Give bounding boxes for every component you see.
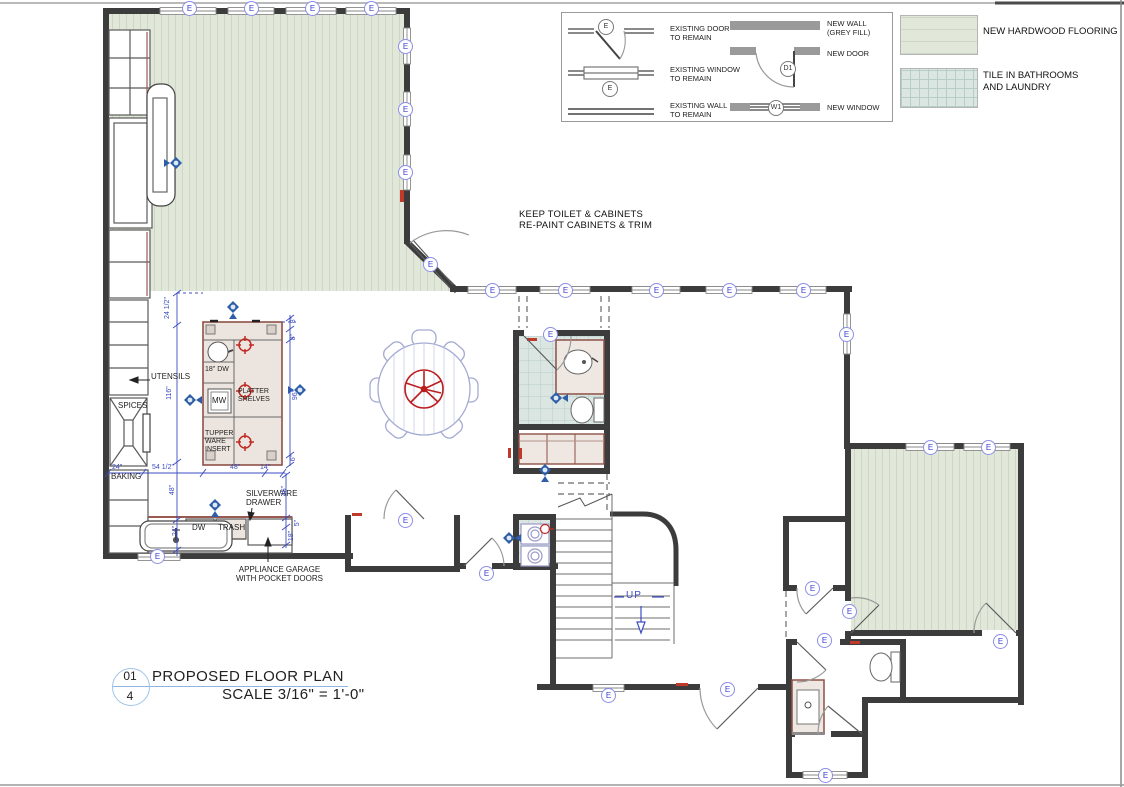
dim-24-h: 24" — [112, 464, 122, 472]
existing-badge: E — [398, 39, 413, 54]
existing-badge: E — [398, 513, 413, 528]
silverware-label: SILVERWARE DRAWER — [246, 489, 297, 507]
legend-new-wall-label: NEW WALL (GREY FILL) — [827, 19, 870, 38]
spices-label: SPICES — [118, 401, 147, 410]
tile-swatch — [900, 68, 978, 108]
door-mudroom — [464, 538, 504, 566]
existing-badge: E — [818, 768, 833, 783]
powder-toilet — [571, 397, 593, 423]
dim-24-v: 24" — [172, 509, 180, 553]
dim-14: 14" — [260, 464, 270, 472]
tupperware-label: TUPPER WARE INSERT — [205, 430, 233, 454]
existing-badge: E — [150, 549, 165, 564]
existing-badge: E — [923, 440, 938, 455]
existing-badge: E — [649, 283, 664, 298]
dim-45: 45" — [281, 469, 289, 513]
existing-badge: E — [558, 283, 573, 298]
up-label: UP — [626, 590, 642, 602]
mudroom-bench — [519, 434, 604, 464]
island-dw-label: 18" DW — [205, 366, 229, 374]
platter-shelves-label: PLATTER SHELVES — [238, 388, 270, 404]
existing-badge: E — [981, 440, 996, 455]
existing-badge: E — [805, 581, 820, 596]
dw-label: DW — [192, 523, 205, 532]
existing-badge: E — [364, 1, 379, 16]
toilet-note: KEEP TOILET & CABINETS RE-PAINT CABINETS… — [519, 210, 652, 232]
existing-badge: E — [796, 283, 811, 298]
legend-w1-badge: W1 — [768, 100, 784, 116]
legend-new-door-icon — [730, 47, 820, 87]
dim-54half: 54 1/2" — [152, 464, 174, 472]
legend-e-window-badge: E — [602, 81, 618, 97]
existing-badge: E — [842, 604, 857, 619]
legend-new-wall-icon — [730, 21, 820, 30]
toilet — [870, 653, 892, 681]
legend-existing-wall-label: EXISTING WALL TO REMAIN — [670, 101, 727, 120]
legend-e-door-badge: E — [598, 19, 614, 35]
hardwood-label: NEW HARDWOOD FLOORING — [983, 26, 1118, 38]
prep-sink — [208, 342, 228, 362]
door-bathroom — [797, 642, 826, 682]
existing-badge: E — [601, 688, 616, 703]
pantry-utensils — [109, 300, 148, 395]
floor-plan-sheet: { "notes": { "toilet_note": "KEEP TOILET… — [0, 0, 1124, 787]
dining-table — [370, 330, 478, 441]
dim-6: 6" — [290, 436, 298, 480]
legend-existing-window-label: EXISTING WINDOW TO REMAIN — [670, 65, 740, 84]
existing-badge: E — [485, 283, 500, 298]
existing-badge: E — [244, 1, 259, 16]
up-arrow — [614, 597, 664, 633]
dim-96: 96" — [292, 373, 300, 417]
legend-existing-door-label: EXISTING DOOR TO REMAIN — [670, 24, 730, 43]
existing-badge: E — [720, 682, 735, 697]
back-bathroom — [792, 652, 900, 734]
legend-existing-wall-icon — [568, 109, 654, 114]
sheet-total: 4 — [112, 689, 148, 703]
existing-badge: E — [305, 1, 320, 16]
dim-48-h: 48" — [230, 464, 240, 472]
existing-badge: E — [398, 102, 413, 117]
appliance-garage — [248, 519, 292, 545]
diamond-symbol — [227, 301, 239, 319]
legend-new-window-label: NEW WINDOW — [827, 103, 880, 112]
existing-badge: E — [423, 257, 438, 272]
existing-badge: E — [182, 1, 197, 16]
existing-badge: E — [839, 327, 854, 342]
baking-label: BAKING — [111, 472, 141, 481]
diamond-symbol — [184, 394, 202, 406]
legend-new-door-label: NEW DOOR — [827, 49, 869, 58]
appliance-garage-label: APPLIANCE GARAGE WITH POCKET DOORS — [236, 565, 323, 583]
trash-label: TRASH — [218, 523, 245, 532]
dim-18: 18" — [288, 514, 296, 558]
sheet-number: 01 — [112, 669, 148, 683]
dim-48-v: 48" — [169, 468, 177, 512]
powder-toilet-tank — [594, 398, 604, 422]
legend-existing-window-icon — [568, 67, 654, 79]
existing-badge: E — [722, 283, 737, 298]
existing-badge: E — [817, 633, 832, 648]
tile-label: TILE IN BATHROOMS AND LAUNDRY — [983, 70, 1078, 95]
existing-badge: E — [479, 566, 494, 581]
dim-116: 116" — [166, 371, 174, 415]
diamond-symbol — [209, 499, 221, 517]
kitchen-south-counter — [140, 517, 292, 553]
microwave-label: MW — [212, 396, 226, 405]
legend-existing-door-icon — [568, 29, 654, 59]
dim-8-b: 8" — [290, 315, 298, 359]
existing-badge: E — [398, 165, 413, 180]
existing-badge: E — [543, 327, 558, 342]
dim-24half: 24 1/2" — [164, 286, 172, 330]
existing-badge: E — [993, 634, 1008, 649]
plan-scale: SCALE 3/16" = 1'-0" — [222, 686, 364, 703]
hardwood-swatch — [900, 15, 978, 55]
plan-title: PROPOSED FLOOR PLAN — [152, 668, 344, 685]
legend-d1-badge: D1 — [780, 61, 796, 77]
legend: E E D1 W1 EXISTING DOOR TO REMAIN EXISTI… — [561, 12, 893, 122]
